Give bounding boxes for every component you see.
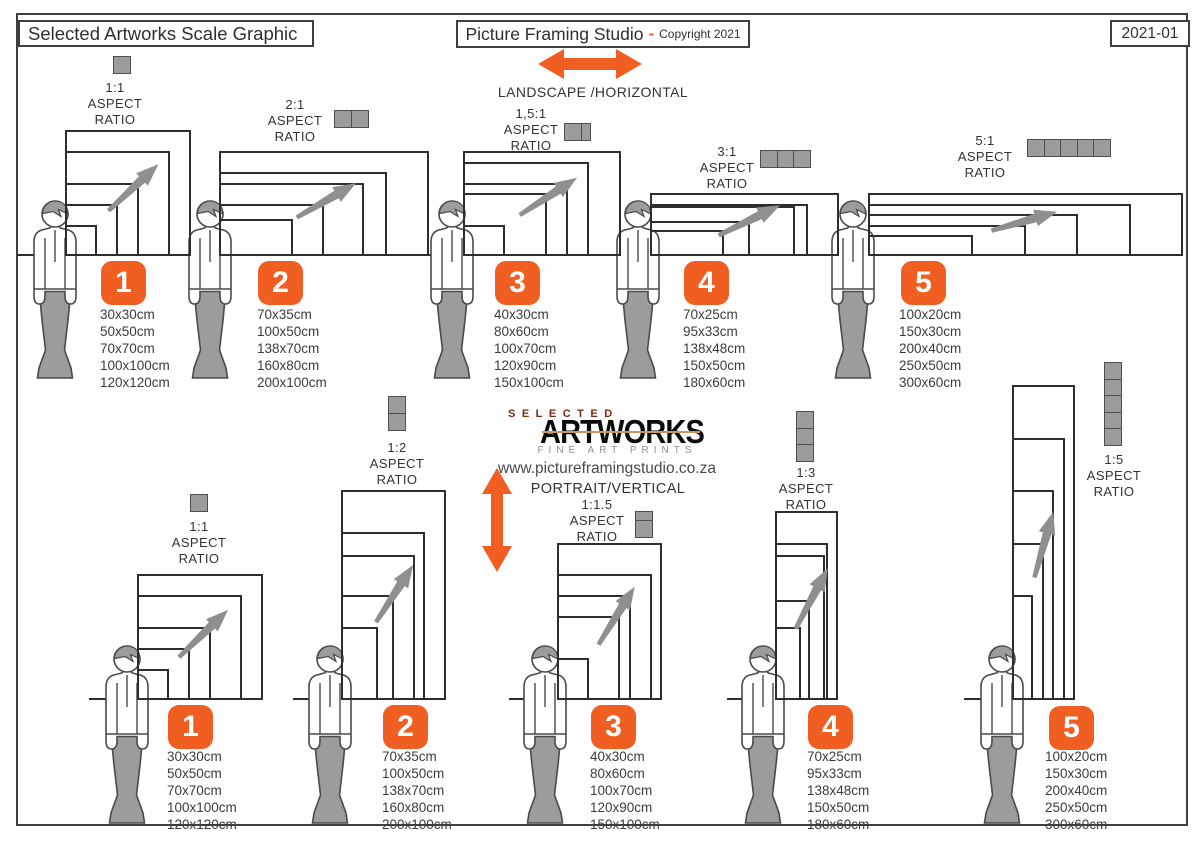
unit-square xyxy=(334,110,352,128)
size-item: 150x30cm xyxy=(1045,765,1107,782)
title-box-right: 2021-01 xyxy=(1110,20,1190,47)
frame-rect xyxy=(868,235,973,256)
portrait-section-label: PORTRAIT/VERTICAL xyxy=(531,481,686,497)
ratio-word: RATIO xyxy=(45,112,185,128)
size-list: 40x30cm80x60cm100x70cm120x90cm150x100cm xyxy=(590,748,660,833)
group-number-badge: 4 xyxy=(684,261,729,305)
size-list: 70x35cm100x50cm138x70cm160x80cm200x100cm xyxy=(257,306,327,391)
size-item: 250x50cm xyxy=(899,357,961,374)
landscape-direction-arrow-icon xyxy=(538,45,642,83)
unit-square xyxy=(1093,139,1111,157)
frame-rect xyxy=(463,225,505,257)
ratio-value: 1:2 xyxy=(327,440,467,456)
unit-square xyxy=(388,413,406,431)
ratio-value: 1:1 xyxy=(45,80,185,96)
size-list: 30x30cm50x50cm70x70cm100x100cm120x120cm xyxy=(100,306,170,391)
portrait-group-5-aspect-label: 1:5ASPECTRATIO xyxy=(1044,452,1184,500)
size-item: 80x60cm xyxy=(590,765,660,782)
unit-square xyxy=(1027,139,1045,157)
unit-square xyxy=(1104,412,1122,430)
size-item: 100x100cm xyxy=(100,357,170,374)
size-item: 70x35cm xyxy=(257,306,327,323)
aspect-ratio-icon xyxy=(760,150,811,168)
title-box-left: Selected Artworks Scale Graphic xyxy=(18,20,314,47)
ratio-value: 1:3 xyxy=(736,465,876,481)
size-item: 120x120cm xyxy=(100,374,170,391)
portrait-group-4-aspect-label: 1:3ASPECTRATIO xyxy=(736,465,876,513)
ratio-word: RATIO xyxy=(1044,484,1184,500)
unit-square xyxy=(1044,139,1062,157)
size-item: 100x100cm xyxy=(167,799,237,816)
page-title: Selected Artworks Scale Graphic xyxy=(28,23,297,45)
size-item: 150x50cm xyxy=(807,799,869,816)
frame-rect xyxy=(341,627,378,701)
size-item: 30x30cm xyxy=(100,306,170,323)
aspect-ratio-icon xyxy=(388,396,406,431)
size-item: 70x70cm xyxy=(100,340,170,357)
unit-square xyxy=(1104,362,1122,380)
size-item: 70x35cm xyxy=(382,748,452,765)
aspect-ratio-icon xyxy=(1027,139,1111,157)
frame-rect xyxy=(775,627,801,701)
aspect-word: ASPECT xyxy=(327,456,467,472)
aspect-ratio-icon xyxy=(564,123,591,141)
size-item: 200x100cm xyxy=(382,816,452,833)
aspect-ratio-icon xyxy=(334,110,369,128)
landscape-section-label: LANDSCAPE /HORIZONTAL xyxy=(498,84,688,100)
size-item: 100x50cm xyxy=(257,323,327,340)
frame-rect xyxy=(65,225,97,257)
title-dash: - xyxy=(648,24,654,44)
size-item: 138x48cm xyxy=(683,340,745,357)
size-item: 100x70cm xyxy=(590,782,660,799)
unit-square xyxy=(1104,428,1122,446)
size-item: 50x50cm xyxy=(167,765,237,782)
ratio-word: RATIO xyxy=(736,497,876,513)
ratio-word: RATIO xyxy=(327,472,467,488)
group-number-badge: 2 xyxy=(258,261,303,305)
unit-square xyxy=(796,428,814,446)
group-number-badge: 4 xyxy=(808,705,853,749)
size-item: 70x70cm xyxy=(167,782,237,799)
unit-square xyxy=(564,123,582,141)
aspect-ratio-icon xyxy=(190,494,208,512)
frame-rect xyxy=(219,219,293,256)
size-item: 180x60cm xyxy=(683,374,745,391)
landscape-group-1-aspect-label: 1:1ASPECTRATIO xyxy=(45,80,185,128)
doc-code: 2021-01 xyxy=(1122,25,1179,43)
brand-tagline: FINE ART PRINTS xyxy=(537,445,696,456)
size-item: 300x60cm xyxy=(899,374,961,391)
aspect-word: ASPECT xyxy=(129,535,269,551)
size-item: 100x20cm xyxy=(1045,748,1107,765)
aspect-word: ASPECT xyxy=(736,481,876,497)
size-item: 70x25cm xyxy=(683,306,745,323)
ratio-value: 1:5 xyxy=(1044,452,1184,468)
unit-square xyxy=(1077,139,1095,157)
studio-title: Picture Framing Studio xyxy=(465,24,643,45)
title-box-center: Picture Framing Studio - Copyright 2021 xyxy=(456,20,750,48)
portrait-group-2-aspect-label: 1:2ASPECTRATIO xyxy=(327,440,467,488)
unit-square xyxy=(796,411,814,429)
ratio-word: RATIO xyxy=(657,176,797,192)
group-number-badge: 5 xyxy=(1049,706,1094,750)
size-item: 70x25cm xyxy=(807,748,869,765)
size-item: 40x30cm xyxy=(590,748,660,765)
size-item: 160x80cm xyxy=(257,357,327,374)
ratio-word: RATIO xyxy=(915,165,1055,181)
portrait-group-1-aspect-label: 1:1ASPECTRATIO xyxy=(129,519,269,567)
size-item: 300x60cm xyxy=(1045,816,1107,833)
size-list: 70x25cm95x33cm138x48cm150x50cm180x60cm xyxy=(807,748,869,833)
size-item: 100x50cm xyxy=(382,765,452,782)
size-item: 120x90cm xyxy=(590,799,660,816)
frame-rect xyxy=(1012,595,1033,700)
size-item: 160x80cm xyxy=(382,799,452,816)
size-item: 250x50cm xyxy=(1045,799,1107,816)
size-item: 95x33cm xyxy=(807,765,869,782)
size-item: 200x100cm xyxy=(257,374,327,391)
aspect-ratio-icon xyxy=(796,411,814,462)
portrait-direction-arrow-icon xyxy=(478,468,516,572)
size-item: 200x40cm xyxy=(1045,782,1107,799)
size-item: 100x70cm xyxy=(494,340,564,357)
frame-rect xyxy=(650,230,724,256)
group-number-badge: 3 xyxy=(495,261,540,305)
group-number-badge: 5 xyxy=(901,261,946,305)
size-list: 70x25cm95x33cm138x48cm150x50cm180x60cm xyxy=(683,306,745,391)
size-item: 150x100cm xyxy=(590,816,660,833)
size-item: 120x120cm xyxy=(167,816,237,833)
size-item: 40x30cm xyxy=(494,306,564,323)
unit-square xyxy=(1104,395,1122,413)
unit-square xyxy=(760,150,778,168)
logo-strike-line xyxy=(542,431,700,433)
unit-square xyxy=(1104,379,1122,397)
unit-square xyxy=(777,150,795,168)
size-item: 150x30cm xyxy=(899,323,961,340)
size-item: 180x60cm xyxy=(807,816,869,833)
aspect-ratio-icon xyxy=(635,511,653,538)
group-number-badge: 3 xyxy=(591,705,636,749)
copyright-text: Copyright 2021 xyxy=(659,27,740,41)
size-item: 95x33cm xyxy=(683,323,745,340)
aspect-word: ASPECT xyxy=(45,96,185,112)
ratio-word: RATIO xyxy=(225,129,365,145)
poster-canvas: Selected Artworks Scale Graphic Picture … xyxy=(0,0,1200,842)
ratio-word: RATIO xyxy=(129,551,269,567)
unit-square xyxy=(113,56,131,74)
size-item: 100x20cm xyxy=(899,306,961,323)
ratio-value: 1,5:1 xyxy=(461,106,601,122)
size-item: 80x60cm xyxy=(494,323,564,340)
frame-rect xyxy=(137,669,169,701)
ratio-value: 1:1 xyxy=(129,519,269,535)
frame-rect xyxy=(557,658,589,700)
aspect-ratio-icon xyxy=(1104,362,1122,446)
size-item: 30x30cm xyxy=(167,748,237,765)
group-number-badge: 1 xyxy=(101,261,146,305)
size-item: 138x70cm xyxy=(257,340,327,357)
size-list: 100x20cm150x30cm200x40cm250x50cm300x60cm xyxy=(1045,748,1107,833)
website-url: www.pictureframingstudio.co.za xyxy=(498,460,716,478)
group-number-badge: 1 xyxy=(168,705,213,749)
size-item: 150x100cm xyxy=(494,374,564,391)
aspect-word: ASPECT xyxy=(1044,468,1184,484)
unit-square xyxy=(388,396,406,414)
half-unit-square xyxy=(581,123,591,141)
size-list: 100x20cm150x30cm200x40cm250x50cm300x60cm xyxy=(899,306,961,391)
aspect-ratio-icon xyxy=(113,56,131,74)
size-item: 200x40cm xyxy=(899,340,961,357)
unit-square xyxy=(1060,139,1078,157)
size-list: 40x30cm80x60cm100x70cm120x90cm150x100cm xyxy=(494,306,564,391)
unit-square xyxy=(351,110,369,128)
unit-square xyxy=(190,494,208,512)
size-item: 50x50cm xyxy=(100,323,170,340)
group-number-badge: 2 xyxy=(383,705,428,749)
unit-square xyxy=(793,150,811,168)
size-item: 138x48cm xyxy=(807,782,869,799)
size-list: 30x30cm50x50cm70x70cm100x100cm120x120cm xyxy=(167,748,237,833)
size-item: 150x50cm xyxy=(683,357,745,374)
size-list: 70x35cm100x50cm138x70cm160x80cm200x100cm xyxy=(382,748,452,833)
size-item: 138x70cm xyxy=(382,782,452,799)
unit-square xyxy=(635,520,653,538)
size-item: 120x90cm xyxy=(494,357,564,374)
unit-square xyxy=(796,444,814,462)
